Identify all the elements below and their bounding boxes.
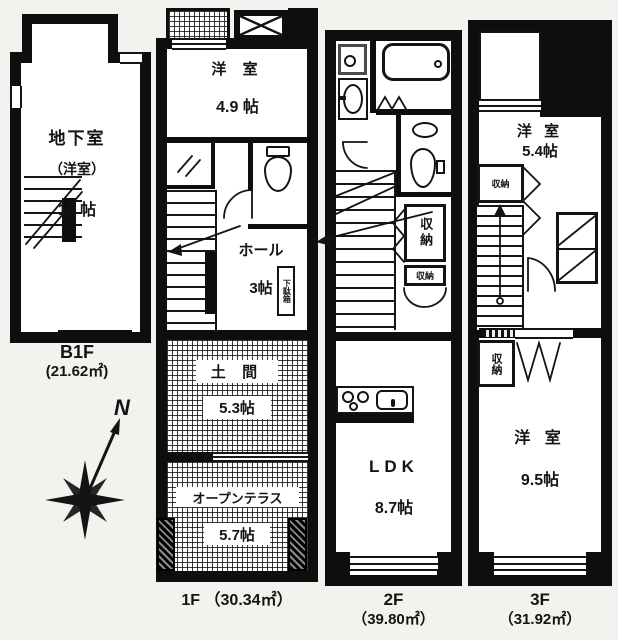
wall-segment	[396, 192, 451, 197]
window-marker	[213, 452, 308, 462]
planter-icon	[288, 518, 307, 571]
planter-icon	[157, 518, 175, 571]
wall-segment	[288, 8, 318, 42]
wall-segment	[167, 330, 308, 340]
b1f-floor-area: (21.62㎡)	[12, 364, 142, 381]
shelf-strip	[483, 330, 513, 337]
f3-storage-top: 収納	[477, 164, 524, 203]
wall-segment	[370, 41, 376, 113]
f2-stairs	[336, 170, 396, 330]
f3-void-room	[479, 31, 541, 101]
wall-segment	[540, 20, 612, 117]
shelf-divider	[559, 248, 595, 250]
washbasin-icon	[338, 78, 368, 120]
window-marker	[479, 99, 541, 112]
balcony-rail	[494, 556, 586, 571]
f1-doma-name: 土 間	[196, 360, 278, 383]
wall-segment	[336, 332, 451, 341]
washer-drum-icon	[344, 55, 356, 67]
f3-stairs	[477, 205, 524, 330]
f1-doma-size: 5.3帖	[203, 396, 271, 419]
f2-storage-tall: 収納	[404, 204, 446, 262]
f1-floor-label: 1F （30.34㎡）	[156, 592, 318, 610]
window-marker	[515, 328, 573, 339]
drain-icon	[434, 60, 442, 68]
window-marker	[10, 86, 22, 108]
wall-segment	[376, 109, 451, 115]
hand-basin-icon	[412, 122, 438, 138]
balcony-rail	[350, 556, 438, 571]
f1-terrace-name: オープンテラス	[176, 487, 299, 507]
wall-segment	[586, 552, 601, 575]
wall-segment	[479, 552, 494, 575]
paper-holder-icon	[436, 160, 445, 174]
f3-floor-area: （31.92㎡）	[468, 612, 612, 629]
faucet-icon	[340, 96, 346, 100]
f3-bedroom2-size: 9.5帖	[479, 472, 601, 490]
f3-bedroom2-name: 洋 室	[479, 430, 601, 448]
f2-ldk-size: 8.7帖	[336, 500, 452, 518]
b1f-room-name2: （洋室）	[12, 162, 142, 177]
b1f-room-name: 地下室	[12, 130, 142, 149]
floorplan: 地下室 （洋室） 13 帖 B1F (21.62㎡) N 洋 室 4.9 帖 ホ…	[0, 0, 618, 640]
wall-segment	[167, 452, 213, 462]
compass-north-label: N	[102, 396, 142, 420]
f1-bedroom-size: 4.9 帖	[167, 99, 308, 117]
f1-void-xbox	[234, 10, 288, 41]
b1f-floor-label: B1F	[12, 343, 142, 363]
wall-segment	[248, 143, 253, 191]
f1-bedroom-name: 洋 室	[167, 62, 308, 79]
f2-floor-label: 2F	[325, 591, 462, 610]
f3-storage-bottom: 収納	[477, 340, 515, 387]
kitchen-sink-icon	[376, 390, 408, 410]
wall-segment	[248, 224, 308, 229]
f2-ldk-name: LDK	[336, 458, 452, 477]
window-marker	[172, 38, 226, 50]
f3-floor-label: 3F	[468, 591, 612, 610]
burner-icon	[349, 402, 358, 411]
wall-segment	[336, 552, 350, 575]
f2-floor-area: （39.80㎡）	[325, 612, 462, 629]
window-marker	[120, 52, 142, 64]
f3-bedroom1-size: 5.4帖	[479, 144, 601, 161]
f2-storage-small: 収納	[404, 265, 446, 286]
washing-machine-icon	[338, 44, 367, 75]
bathtub-icon	[382, 43, 450, 81]
faucet-icon	[391, 399, 395, 407]
basin-bowl-icon	[343, 84, 363, 114]
f3-bedroom1-name: 洋 室	[479, 124, 601, 141]
wall-segment	[437, 552, 451, 575]
b1f-bottom-step	[58, 321, 132, 333]
f1-shoe-cabinet: 下駄箱	[277, 266, 295, 316]
burner-icon	[357, 391, 369, 403]
f1-hall-name: ホール	[215, 243, 307, 260]
f1-terrace-size: 5.7帖	[204, 523, 270, 545]
wall-segment	[396, 115, 401, 197]
compass-rose-icon	[28, 408, 143, 573]
b1f-notch-seam	[32, 52, 108, 66]
f1-closet	[167, 143, 215, 189]
wall-segment	[336, 414, 414, 423]
f1-terrace-hatch	[167, 462, 308, 571]
f3-shelf-closet	[556, 212, 598, 284]
b1f-room-size: 13 帖	[12, 202, 142, 220]
kitchen-counter-icon	[336, 386, 414, 414]
